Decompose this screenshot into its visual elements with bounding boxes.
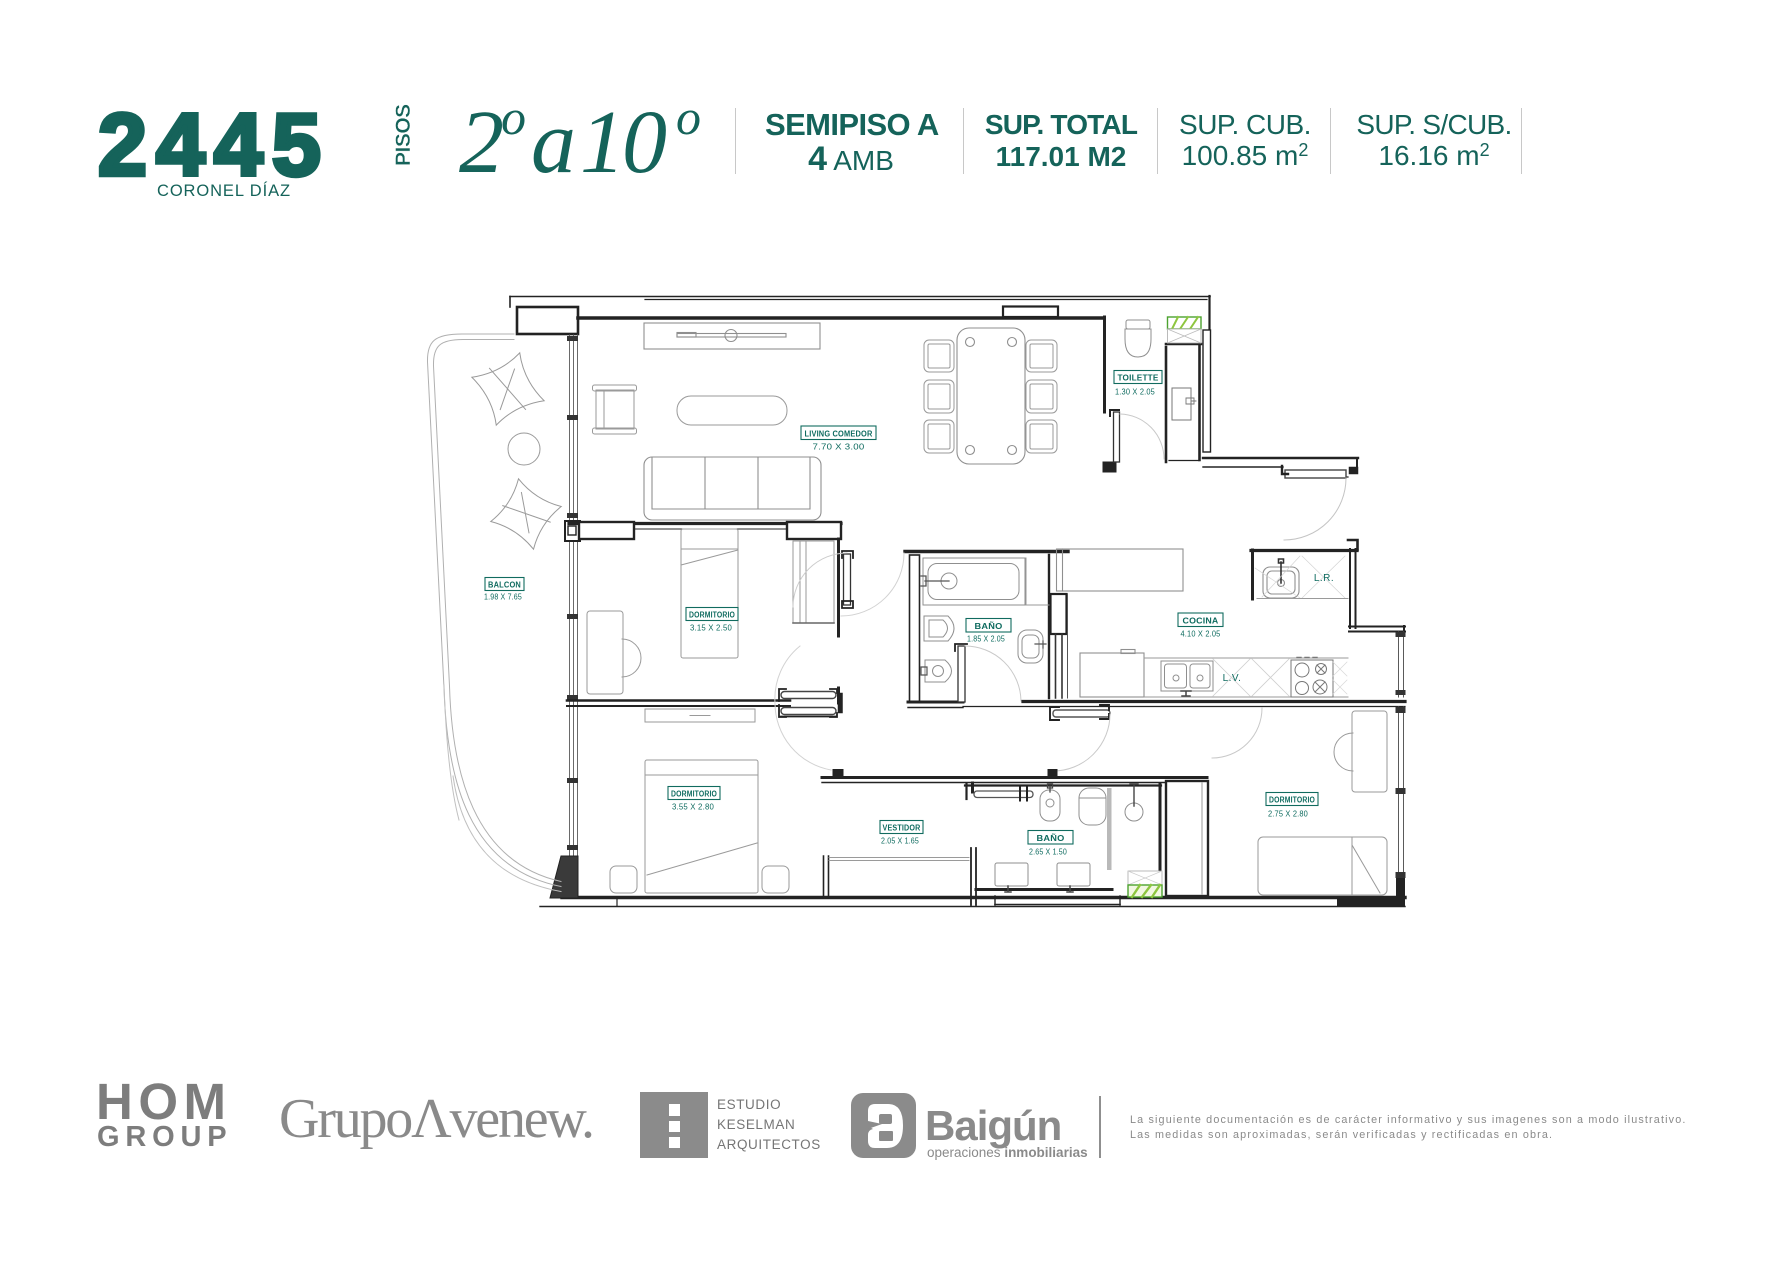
svg-text:BALCON: BALCON (488, 580, 521, 590)
svg-text:DORMITORIO: DORMITORIO (689, 610, 735, 620)
svg-text:1.98 X 7.65: 1.98 X 7.65 (484, 593, 522, 602)
svg-text:DORMITORIO: DORMITORIO (1269, 795, 1315, 805)
svg-text:KESELMAN: KESELMAN (717, 1117, 795, 1132)
svg-text:Baigún: Baigún (925, 1102, 1061, 1149)
svg-text:2.75 X 2.80: 2.75 X 2.80 (1268, 810, 1308, 819)
svg-text:1.85 X 2.05: 1.85 X 2.05 (967, 635, 1005, 644)
svg-text:BAÑO: BAÑO (1037, 833, 1065, 843)
svg-text:3.55 X 2.80: 3.55 X 2.80 (672, 803, 714, 812)
svg-text:LIVING COMEDOR: LIVING COMEDOR (805, 429, 874, 439)
svg-text:2.65 X 1.50: 2.65 X 1.50 (1029, 848, 1067, 857)
svg-text:ESTUDIO: ESTUDIO (717, 1097, 781, 1112)
svg-text:L.V.: L.V. (1223, 673, 1242, 684)
svg-text:4.10 X 2.05: 4.10 X 2.05 (1181, 630, 1221, 639)
svg-text:L.R.: L.R. (1314, 573, 1334, 584)
svg-text:BAÑO: BAÑO (975, 621, 1003, 631)
svg-text:ARQUITECTOS: ARQUITECTOS (717, 1137, 821, 1152)
svg-text:COCINA: COCINA (1183, 616, 1219, 626)
svg-text:TOILETTE: TOILETTE (1118, 373, 1159, 383)
svg-text:operaciones inmobiliarias: operaciones inmobiliarias (927, 1145, 1088, 1160)
svg-text:1.30 X 2.05: 1.30 X 2.05 (1115, 388, 1155, 397)
svg-text:DORMITORIO: DORMITORIO (671, 789, 717, 799)
svg-text:7.70 X 3.00: 7.70 X 3.00 (813, 443, 865, 452)
svg-text:3.15 X 2.50: 3.15 X 2.50 (690, 624, 732, 633)
svg-text:2.05 X 1.65: 2.05 X 1.65 (881, 837, 919, 846)
svg-text:VESTIDOR: VESTIDOR (883, 823, 921, 833)
